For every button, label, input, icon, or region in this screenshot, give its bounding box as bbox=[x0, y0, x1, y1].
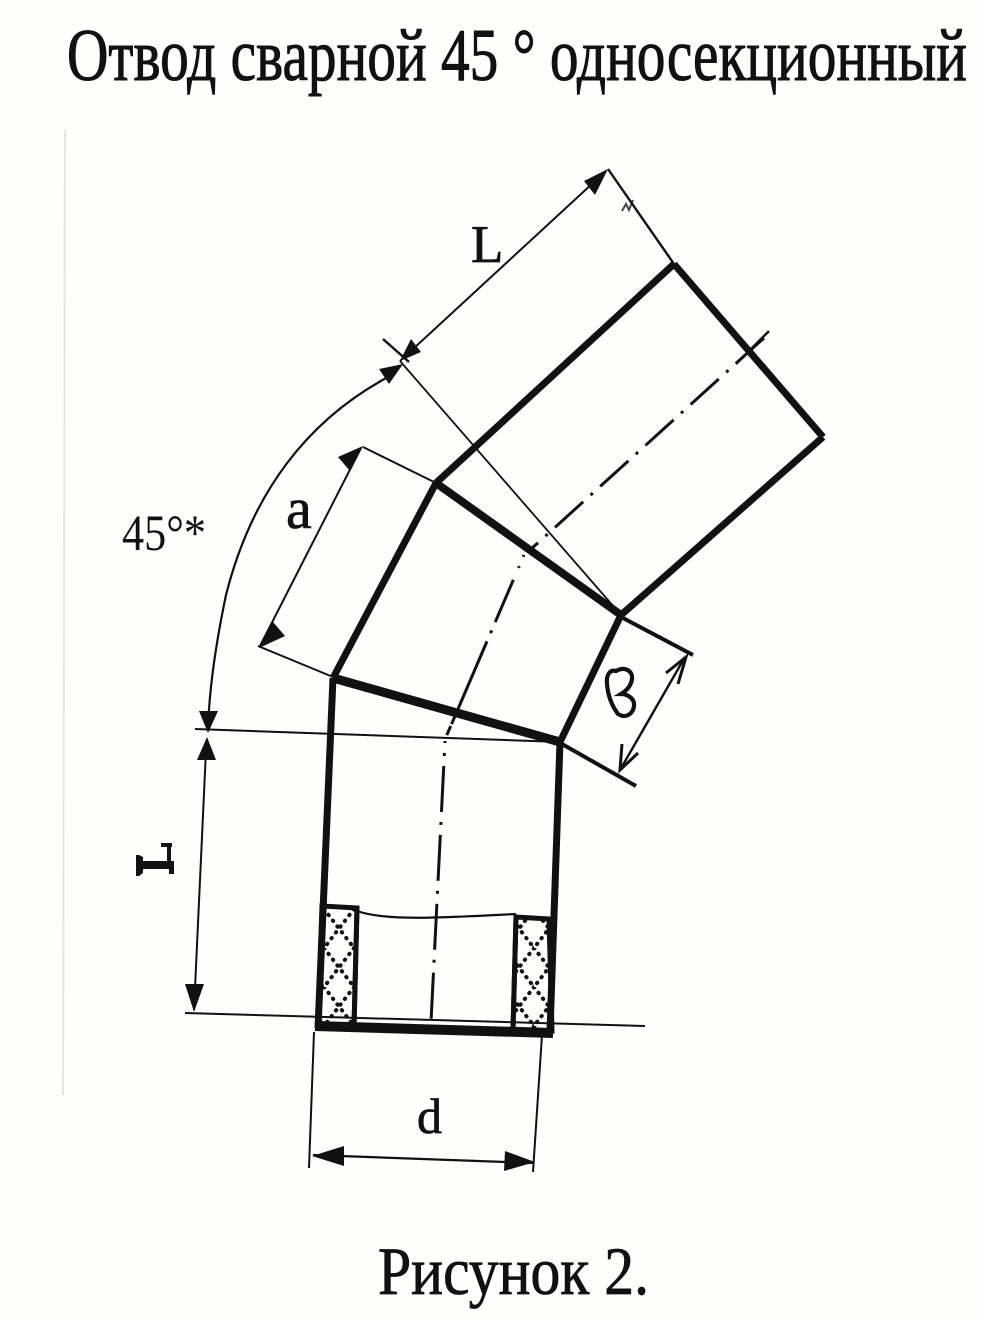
svg-text:d: d bbox=[417, 1088, 442, 1144]
svg-text:L: L bbox=[471, 216, 503, 274]
svg-text:a: a bbox=[286, 476, 312, 541]
svg-text:Рисунок 2.: Рисунок 2. bbox=[378, 1233, 649, 1309]
svg-text:Отвод сварной 45 ° односекцион: Отвод сварной 45 ° односекционный bbox=[67, 15, 967, 97]
svg-text:45°*: 45°* bbox=[122, 506, 206, 562]
